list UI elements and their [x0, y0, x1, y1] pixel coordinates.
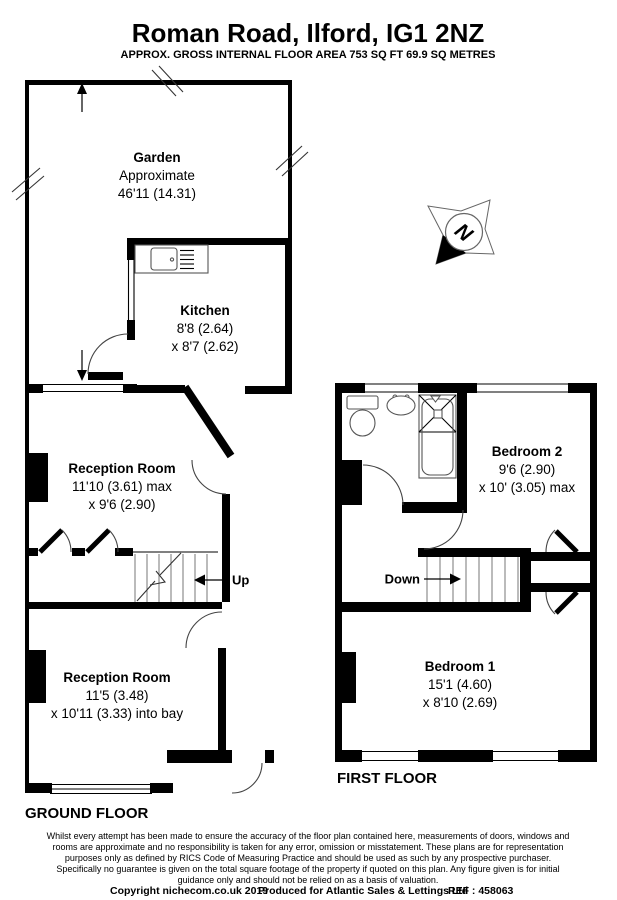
floorplan-page: Roman Road, Ilford, IG1 2NZ APPROX. GROS…: [0, 0, 617, 900]
entrance-arrow-icon: [77, 350, 87, 381]
floorplan-canvas: Roman Road, Ilford, IG1 2NZ APPROX. GROS…: [0, 0, 617, 900]
kitchen-dim2: x 8'7 (2.62): [171, 339, 238, 354]
disclaimer-line-1: Whilst every attempt has been made to en…: [47, 831, 570, 841]
room-garden: Garden Approximate 46'11 (14.31): [118, 150, 196, 201]
bedroom2-dim2: x 10' (3.05) max: [479, 480, 576, 495]
bedroom2-dim1: 9'6 (2.90): [499, 462, 556, 477]
disclaimer-line-2: rooms are approximate and no responsibil…: [52, 842, 563, 852]
bedroom1-name: Bedroom 1: [425, 659, 496, 674]
room-kitchen: Kitchen 8'8 (2.64) x 8'7 (2.62): [171, 303, 238, 354]
page-subtitle: APPROX. GROSS INTERNAL FLOOR AREA 753 SQ…: [121, 49, 496, 61]
bath-icon: [419, 395, 456, 478]
copyright-ref: REF : 458063: [448, 885, 514, 897]
room-reception-1: Reception Room 11'10 (3.61) max x 9'6 (2…: [68, 461, 175, 512]
kitchen-name: Kitchen: [180, 303, 230, 318]
garden-dim2: 46'11 (14.31): [118, 186, 196, 201]
copyright-producer: Produced for Atlantic Sales & Lettings L…: [258, 885, 468, 897]
reception2-dim1: 11'5 (3.48): [85, 688, 148, 703]
ground-floor-label: GROUND FLOOR: [25, 805, 148, 822]
reception1-dim1: 11'10 (3.61) max: [72, 479, 172, 494]
copyright-source: Copyright nichecom.co.uk 2019: [110, 885, 268, 897]
first-floor-label: FIRST FLOOR: [337, 770, 437, 787]
room-reception-2: Reception Room 11'5 (3.48) x 10'11 (3.33…: [51, 670, 183, 721]
up-label: Up: [232, 573, 249, 588]
reception2-dim2: x 10'11 (3.33) into bay: [51, 706, 183, 721]
copyright-line: Copyright nichecom.co.uk 2019 Produced f…: [110, 885, 514, 897]
disclaimer-line-4: Specifically no guarantee is given on th…: [56, 864, 559, 874]
kitchen-dim1: 8'8 (2.64): [177, 321, 234, 336]
garden-name: Garden: [133, 150, 180, 165]
room-bedroom-1: Bedroom 1 15'1 (4.60) x 8'10 (2.69): [423, 659, 498, 710]
garden-arrow-icon: [77, 83, 87, 112]
reception1-dim2: x 9'6 (2.90): [88, 497, 155, 512]
bedroom1-dim2: x 8'10 (2.69): [423, 695, 498, 710]
garden-dim1: Approximate: [119, 168, 195, 183]
disclaimer-line-5: guidance only and should not be relied o…: [178, 875, 439, 885]
disclaimer: Whilst every attempt has been made to en…: [47, 831, 570, 885]
page-title: Roman Road, Ilford, IG1 2NZ: [132, 18, 485, 48]
room-bedroom-2: Bedroom 2 9'6 (2.90) x 10' (3.05) max: [479, 444, 576, 495]
bedroom2-name: Bedroom 2: [492, 444, 563, 459]
disclaimer-line-3: purposes only as defined by RICS Code of…: [65, 853, 551, 863]
reception2-name: Reception Room: [63, 670, 170, 685]
toilet-icon: [347, 396, 378, 436]
basin-icon: [387, 395, 415, 415]
bedroom1-dim1: 15'1 (4.60): [428, 677, 492, 692]
kitchen-sink-icon: [135, 245, 208, 273]
reception1-name: Reception Room: [68, 461, 175, 476]
down-label: Down: [385, 572, 420, 587]
compass-icon: N: [428, 200, 494, 264]
down-arrow-icon: [424, 574, 461, 585]
